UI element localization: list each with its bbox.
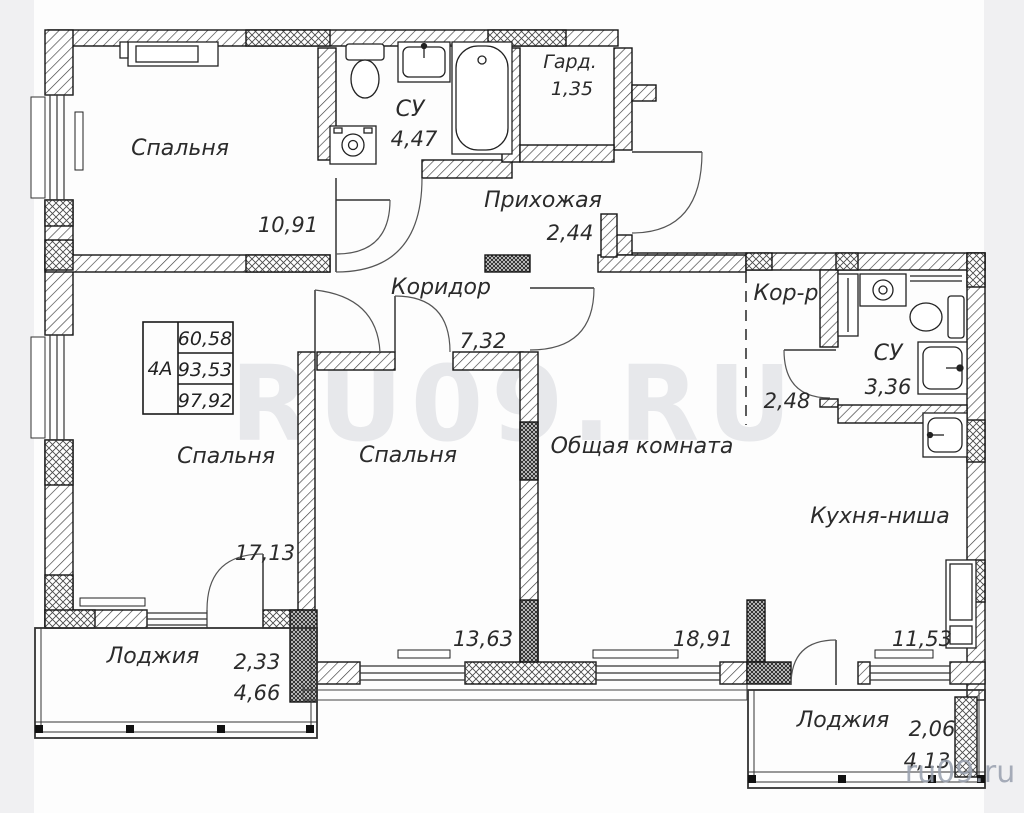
room-area-bathroom-right: 3,36 <box>865 375 912 399</box>
radiator-icon <box>593 650 678 658</box>
radiator-icon <box>398 650 450 658</box>
area-main: 93,53 <box>178 359 232 381</box>
room-area-full-loggia-left: 4,66 <box>234 681 281 705</box>
room-label-kitchen: Кухня-ниша <box>810 504 950 529</box>
wardrobe-icon <box>120 42 218 66</box>
room-label-bedroom-top: Спальня <box>131 136 229 161</box>
room-label-hallway: Прихожая <box>484 188 602 213</box>
radiator-icon <box>875 650 933 658</box>
cabinet-icon <box>838 274 858 336</box>
room-label-corridor-small: Кор-р <box>754 281 819 306</box>
room-label-living-room: Общая комната <box>551 434 734 459</box>
radiator-icon <box>75 112 83 170</box>
room-area-corridor: 7,32 <box>460 329 507 353</box>
room-area-living-room: 18,91 <box>673 627 733 651</box>
room-area-corridor-small: 2,48 <box>764 389 811 413</box>
room-area-hallway: 2,44 <box>547 221 594 245</box>
room-label-loggia-right: Лоджия <box>796 708 890 733</box>
floor-plan-drawing: RU09.RU <box>0 0 1024 813</box>
area-living: 60,58 <box>178 328 232 350</box>
room-label-corridor: Коридор <box>391 275 491 300</box>
sink-icon <box>918 342 967 394</box>
radiator-icon <box>80 598 145 606</box>
room-area-bedroom-middle: 13,63 <box>453 627 513 651</box>
left-margin-strip <box>0 0 34 813</box>
room-label-bathroom-right: СУ <box>874 341 904 366</box>
room-label-bedroom-middle: Спальня <box>359 443 457 468</box>
room-area-wardrobe: 1,35 <box>551 78 593 100</box>
washing-machine-icon <box>330 126 376 164</box>
room-label-bathroom-top: СУ <box>396 97 426 122</box>
bathtub-icon <box>452 42 512 154</box>
kitchen-sink-icon <box>923 413 967 457</box>
room-area-bathroom-top: 4,47 <box>391 127 438 151</box>
room-area-half-loggia-right: 2,06 <box>909 717 956 741</box>
room-area-bedroom-top: 10,91 <box>258 213 318 237</box>
room-label-wardrobe: Гард. <box>543 51 596 73</box>
room-label-loggia-left: Лоджия <box>106 644 200 669</box>
room-label-bedroom-left: Спальня <box>177 444 275 469</box>
watermark-small: ru09.ru <box>905 755 1015 790</box>
floor-plan-page: RU09.RU <box>0 0 1024 813</box>
room-area-kitchen: 11,53 <box>892 627 952 651</box>
room-area-half-loggia-left: 2,33 <box>234 650 281 674</box>
unit-number: 4А <box>147 358 172 380</box>
area-total: 97,92 <box>178 390 232 412</box>
room-area-bedroom-left: 17,13 <box>235 541 295 565</box>
sink-icon <box>398 42 450 82</box>
window <box>147 610 207 628</box>
right-margin-strip <box>984 0 1024 813</box>
washing-machine-icon <box>860 274 906 306</box>
